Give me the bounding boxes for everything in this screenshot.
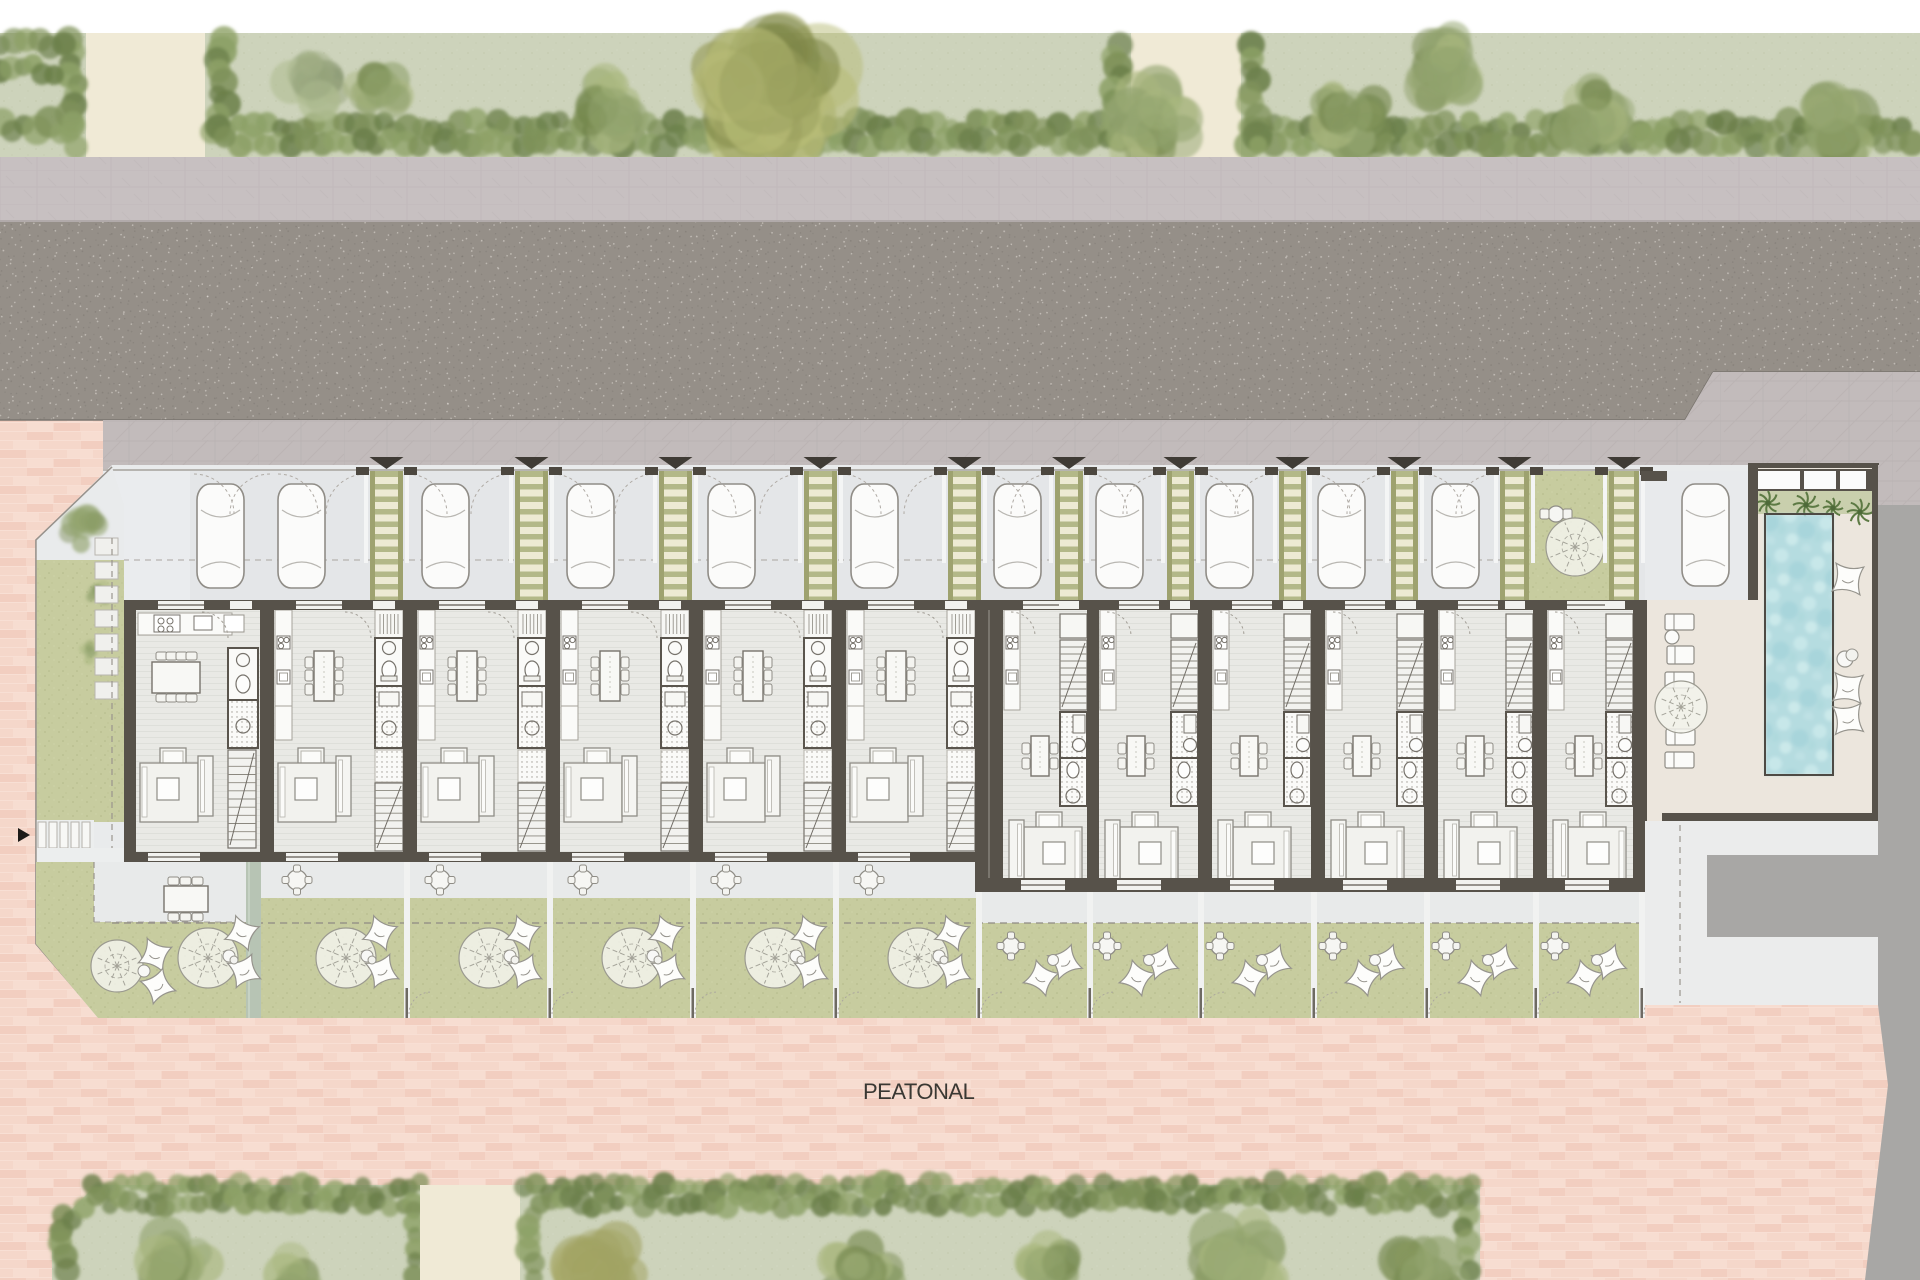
svg-text:PEATONAL: PEATONAL: [863, 1079, 975, 1104]
